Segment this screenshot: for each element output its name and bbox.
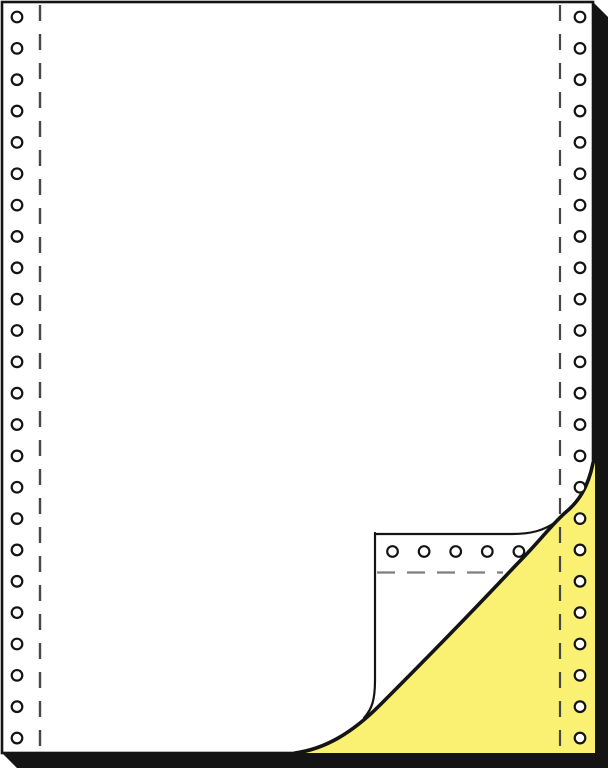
sprocket-hole — [575, 482, 586, 493]
sprocket-hole — [575, 168, 586, 179]
sprocket-hole — [575, 701, 586, 712]
sprocket-hole — [12, 419, 23, 430]
sprocket-hole — [575, 607, 586, 618]
sprocket-hole — [12, 74, 23, 85]
sprocket-hole — [12, 670, 23, 681]
sprocket-hole — [387, 546, 398, 557]
sprocket-hole — [575, 513, 586, 524]
sprocket-hole — [450, 546, 461, 557]
sprocket-hole — [12, 513, 23, 524]
sprocket-hole — [575, 670, 586, 681]
sprocket-hole — [575, 106, 586, 117]
sprocket-hole — [575, 231, 586, 242]
sprocket-hole — [575, 200, 586, 211]
sprocket-hole — [575, 639, 586, 650]
sprocket-hole — [12, 545, 23, 556]
sprocket-hole — [12, 357, 23, 368]
sprocket-hole — [575, 294, 586, 305]
sprocket-hole — [575, 43, 586, 54]
sprocket-hole — [575, 576, 586, 587]
sprocket-hole — [12, 168, 23, 179]
sprocket-hole — [575, 137, 586, 148]
sprocket-hole — [12, 106, 23, 117]
sprocket-hole — [514, 546, 525, 557]
sprocket-hole — [12, 325, 23, 336]
sprocket-hole — [482, 546, 493, 557]
sprocket-hole — [575, 733, 586, 744]
sprocket-hole — [12, 12, 23, 23]
paper-illustration-canvas — [0, 0, 608, 768]
sprocket-hole — [575, 74, 586, 85]
sprocket-hole — [575, 451, 586, 462]
sprocket-hole — [419, 546, 430, 557]
sprocket-hole — [12, 607, 23, 618]
sprocket-hole — [12, 733, 23, 744]
sprocket-hole — [575, 419, 586, 430]
sprocket-hole — [12, 576, 23, 587]
sprocket-hole — [12, 200, 23, 211]
sprocket-hole — [12, 43, 23, 54]
sprocket-hole — [12, 137, 23, 148]
sprocket-hole — [575, 357, 586, 368]
sprocket-hole — [12, 231, 23, 242]
sprocket-hole — [12, 482, 23, 493]
sprocket-hole — [12, 451, 23, 462]
product-image-continuous-form-paper — [0, 0, 608, 768]
sprocket-hole — [575, 263, 586, 274]
sprocket-hole — [575, 545, 586, 556]
sprocket-hole — [12, 639, 23, 650]
sprocket-hole — [12, 263, 23, 274]
sprocket-hole — [575, 325, 586, 336]
sprocket-hole — [575, 388, 586, 399]
sprocket-hole — [12, 388, 23, 399]
sprocket-hole — [12, 701, 23, 712]
sprocket-hole — [575, 12, 586, 23]
sprocket-hole — [12, 294, 23, 305]
